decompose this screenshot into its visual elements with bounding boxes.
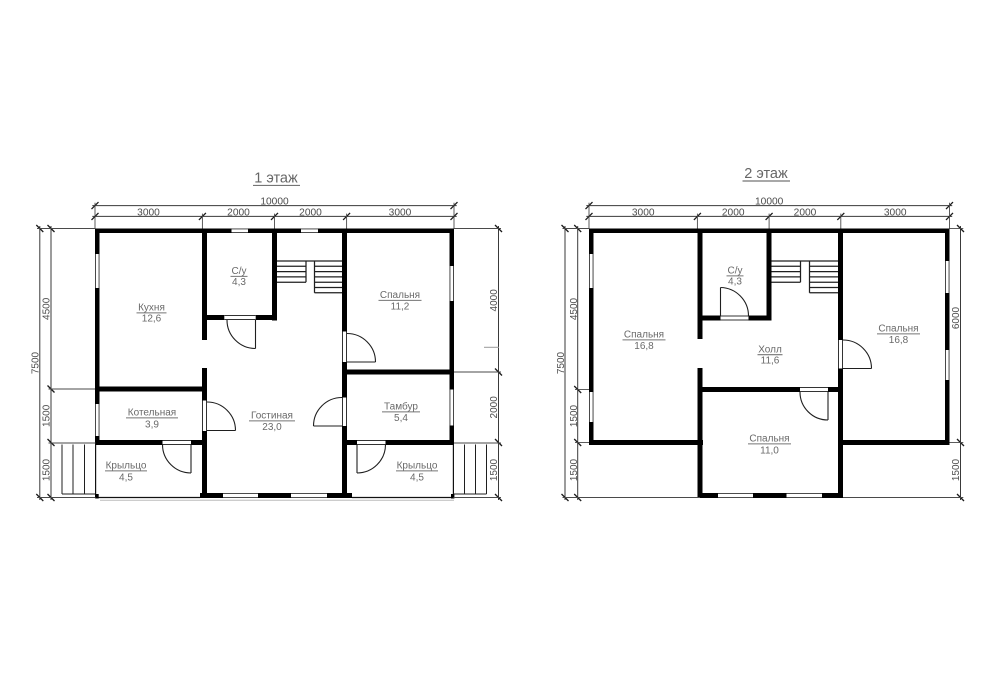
svg-text:4000: 4000 <box>489 289 500 312</box>
svg-text:1500: 1500 <box>489 458 500 481</box>
svg-text:1500: 1500 <box>951 458 962 481</box>
svg-text:3000: 3000 <box>632 208 655 219</box>
svg-text:1500: 1500 <box>569 458 580 481</box>
svg-text:Холл: Холл <box>758 344 782 355</box>
svg-text:7500: 7500 <box>31 351 42 374</box>
svg-text:11,2: 11,2 <box>391 302 410 313</box>
svg-text:10000: 10000 <box>755 197 784 208</box>
svg-text:2000: 2000 <box>794 208 817 219</box>
svg-text:10000: 10000 <box>260 197 289 208</box>
svg-text:Спальня: Спальня <box>749 434 789 445</box>
svg-text:Спальня: Спальня <box>878 324 918 335</box>
svg-text:4500: 4500 <box>42 297 53 320</box>
svg-text:1500: 1500 <box>569 404 580 427</box>
svg-text:3000: 3000 <box>389 208 412 219</box>
svg-text:16,8: 16,8 <box>634 341 654 352</box>
svg-text:Крыльцо: Крыльцо <box>106 461 147 472</box>
svg-text:Крыльцо: Крыльцо <box>397 461 438 472</box>
svg-text:4500: 4500 <box>569 297 580 320</box>
svg-text:7500: 7500 <box>556 351 567 374</box>
svg-text:2000: 2000 <box>299 208 322 219</box>
svg-text:Гостиная: Гостиная <box>251 411 293 422</box>
svg-text:1500: 1500 <box>42 458 53 481</box>
svg-text:5,4: 5,4 <box>394 413 408 424</box>
svg-text:2000: 2000 <box>489 396 500 419</box>
svg-text:Спальня: Спальня <box>380 290 420 301</box>
svg-text:16,8: 16,8 <box>889 335 909 346</box>
svg-text:6000: 6000 <box>951 306 962 329</box>
svg-text:23,0: 23,0 <box>262 422 282 433</box>
svg-text:1 этаж: 1 этаж <box>254 171 298 187</box>
svg-text:12,6: 12,6 <box>142 314 162 325</box>
svg-text:4,3: 4,3 <box>232 277 246 288</box>
svg-text:4,5: 4,5 <box>410 473 424 484</box>
svg-text:2000: 2000 <box>722 208 745 219</box>
svg-text:С/у: С/у <box>728 266 743 277</box>
svg-text:2 этаж: 2 этаж <box>744 166 788 182</box>
svg-text:11,6: 11,6 <box>761 356 780 367</box>
svg-text:4,5: 4,5 <box>119 473 133 484</box>
svg-text:3,9: 3,9 <box>145 420 159 431</box>
svg-text:3000: 3000 <box>137 208 160 219</box>
svg-text:11,0: 11,0 <box>760 446 779 457</box>
svg-text:С/у: С/у <box>232 266 247 277</box>
svg-text:Кухня: Кухня <box>138 303 165 314</box>
svg-text:Спальня: Спальня <box>624 330 664 341</box>
svg-text:4,3: 4,3 <box>728 277 742 288</box>
svg-text:2000: 2000 <box>227 208 250 219</box>
svg-text:1500: 1500 <box>42 404 53 427</box>
svg-text:Котельная: Котельная <box>128 408 176 419</box>
svg-text:Тамбур: Тамбур <box>384 401 418 413</box>
svg-text:3000: 3000 <box>884 208 907 219</box>
